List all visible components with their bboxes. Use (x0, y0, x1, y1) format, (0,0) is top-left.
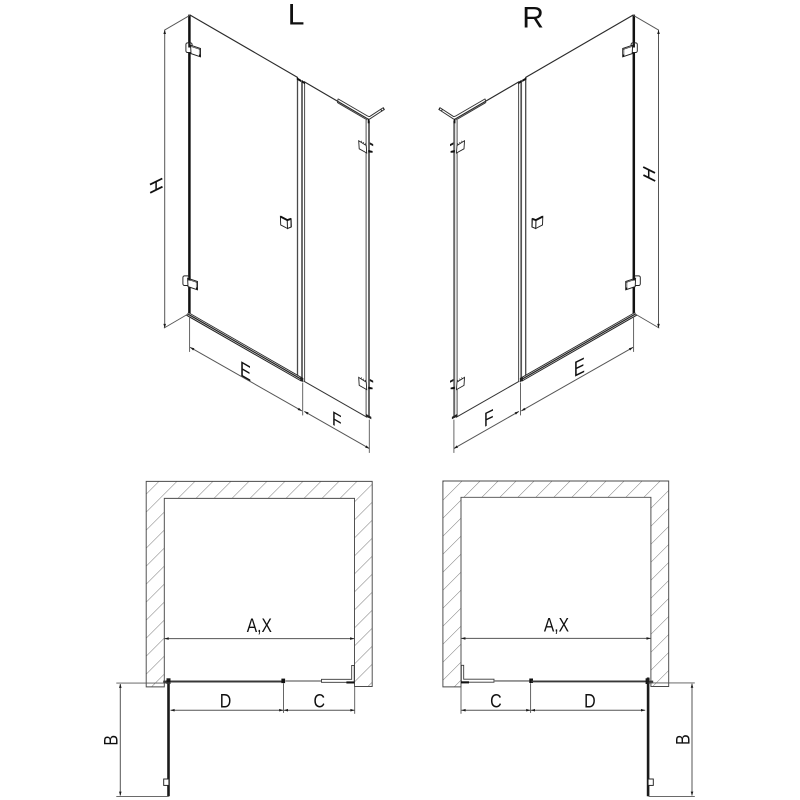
svg-text:A,X: A,X (544, 614, 569, 636)
svg-text:B: B (672, 734, 694, 745)
svg-text:F: F (484, 406, 494, 433)
svg-text:D: D (584, 690, 596, 712)
svg-text:D: D (220, 690, 232, 712)
svg-text:A,X: A,X (247, 615, 272, 637)
svg-text:L: L (288, 0, 305, 31)
svg-text:C: C (314, 690, 326, 712)
svg-text:B: B (100, 735, 122, 746)
svg-text:R: R (522, 2, 544, 35)
svg-text:C: C (490, 690, 502, 712)
